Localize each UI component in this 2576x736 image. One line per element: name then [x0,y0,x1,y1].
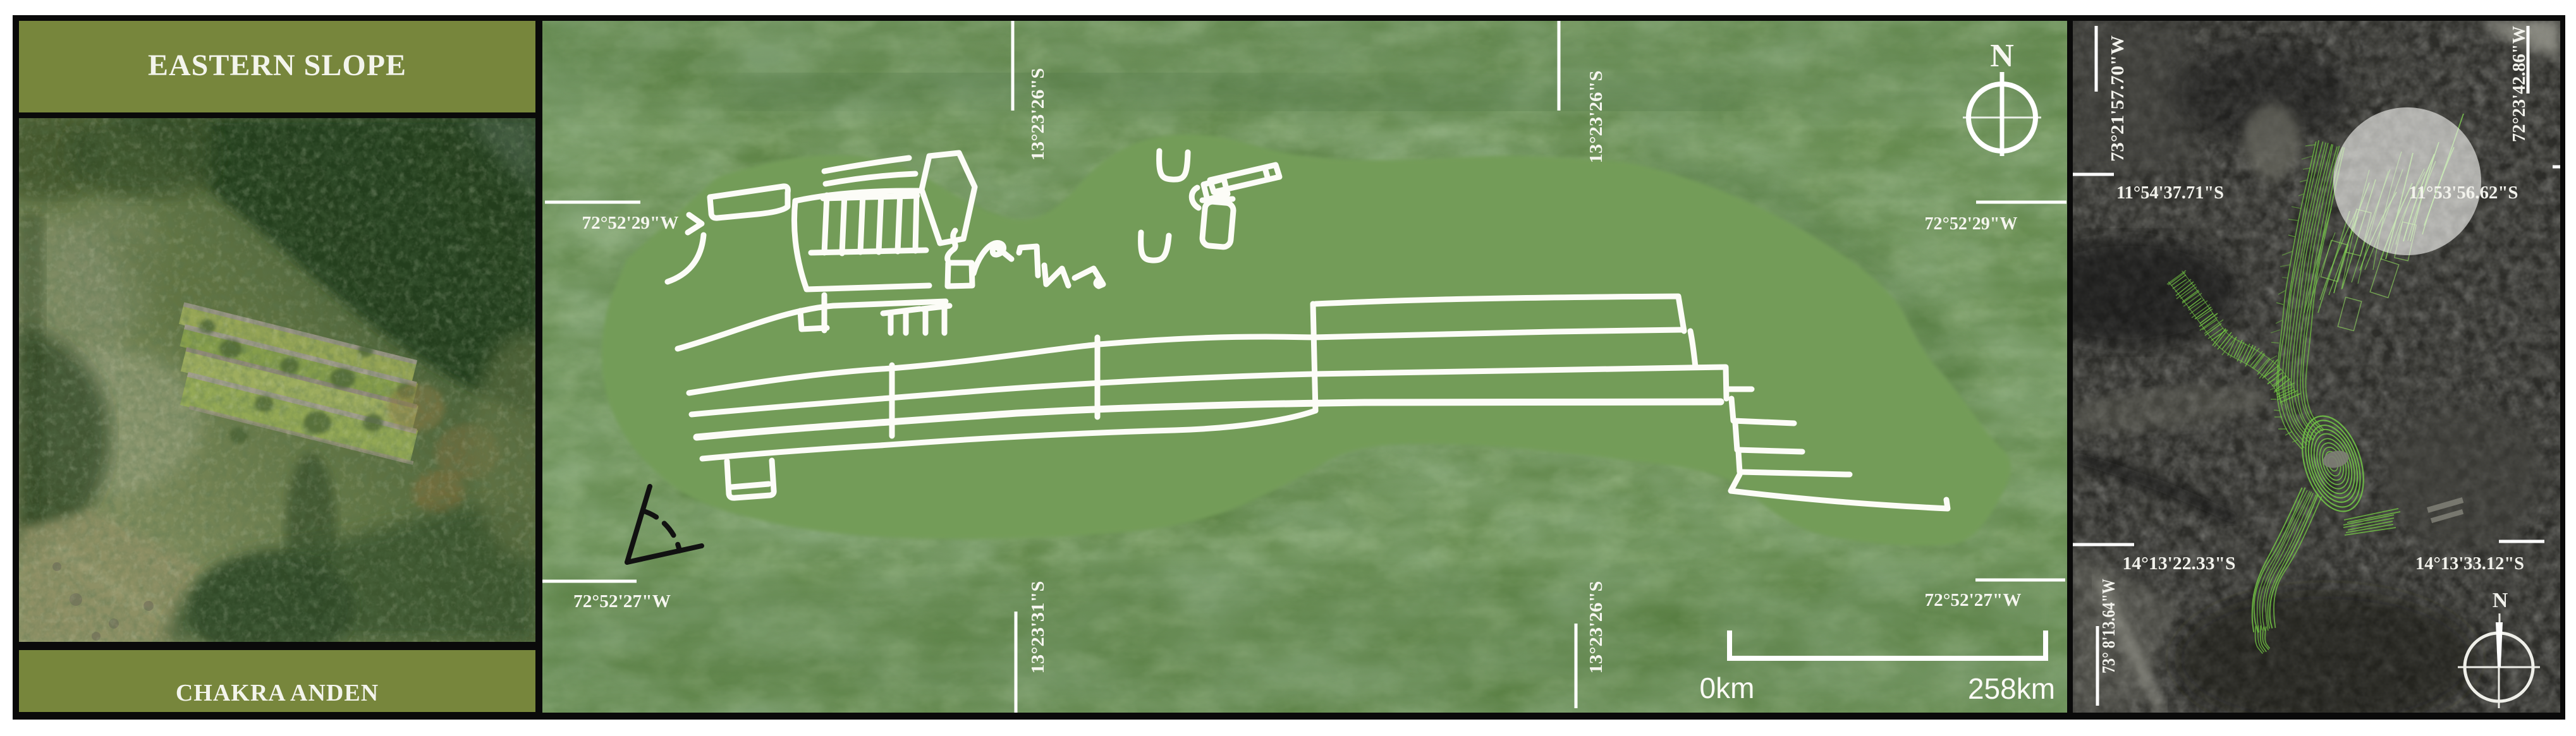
svg-text:13°23'26"S: 13°23'26"S [1587,581,1606,674]
svg-text:11°53'56.62"S: 11°53'56.62"S [2409,183,2518,203]
svg-text:73°21'57.70"W: 73°21'57.70"W [2108,35,2128,162]
svg-text:13°23'31"S: 13°23'31"S [1029,581,1048,674]
svg-text:72°52'27"W: 72°52'27"W [1925,591,2022,610]
svg-text:13°23'26"S: 13°23'26"S [1029,68,1048,161]
svg-text:258km: 258km [1968,672,2055,705]
svg-text:N: N [2493,589,2508,612]
svg-text:72°52'27"W: 72°52'27"W [573,592,671,612]
svg-text:14°13'33.12"S: 14°13'33.12"S [2415,554,2524,574]
svg-text:73° 8'13.64"W: 73° 8'13.64"W [2099,579,2119,673]
svg-text:72°52'29"W: 72°52'29"W [1925,214,2018,234]
svg-text:11°54'37.71"S: 11°54'37.71"S [2116,183,2224,203]
svg-text:72°23'42.86"W: 72°23'42.86"W [2510,26,2529,142]
svg-text:14°13'22.33"S: 14°13'22.33"S [2123,554,2236,574]
svg-text:N: N [1990,38,2014,74]
svg-text:0km: 0km [1700,672,1755,704]
svg-text:72°52'29"W: 72°52'29"W [582,214,679,233]
svg-text:13°23'26"S: 13°23'26"S [1587,71,1606,164]
